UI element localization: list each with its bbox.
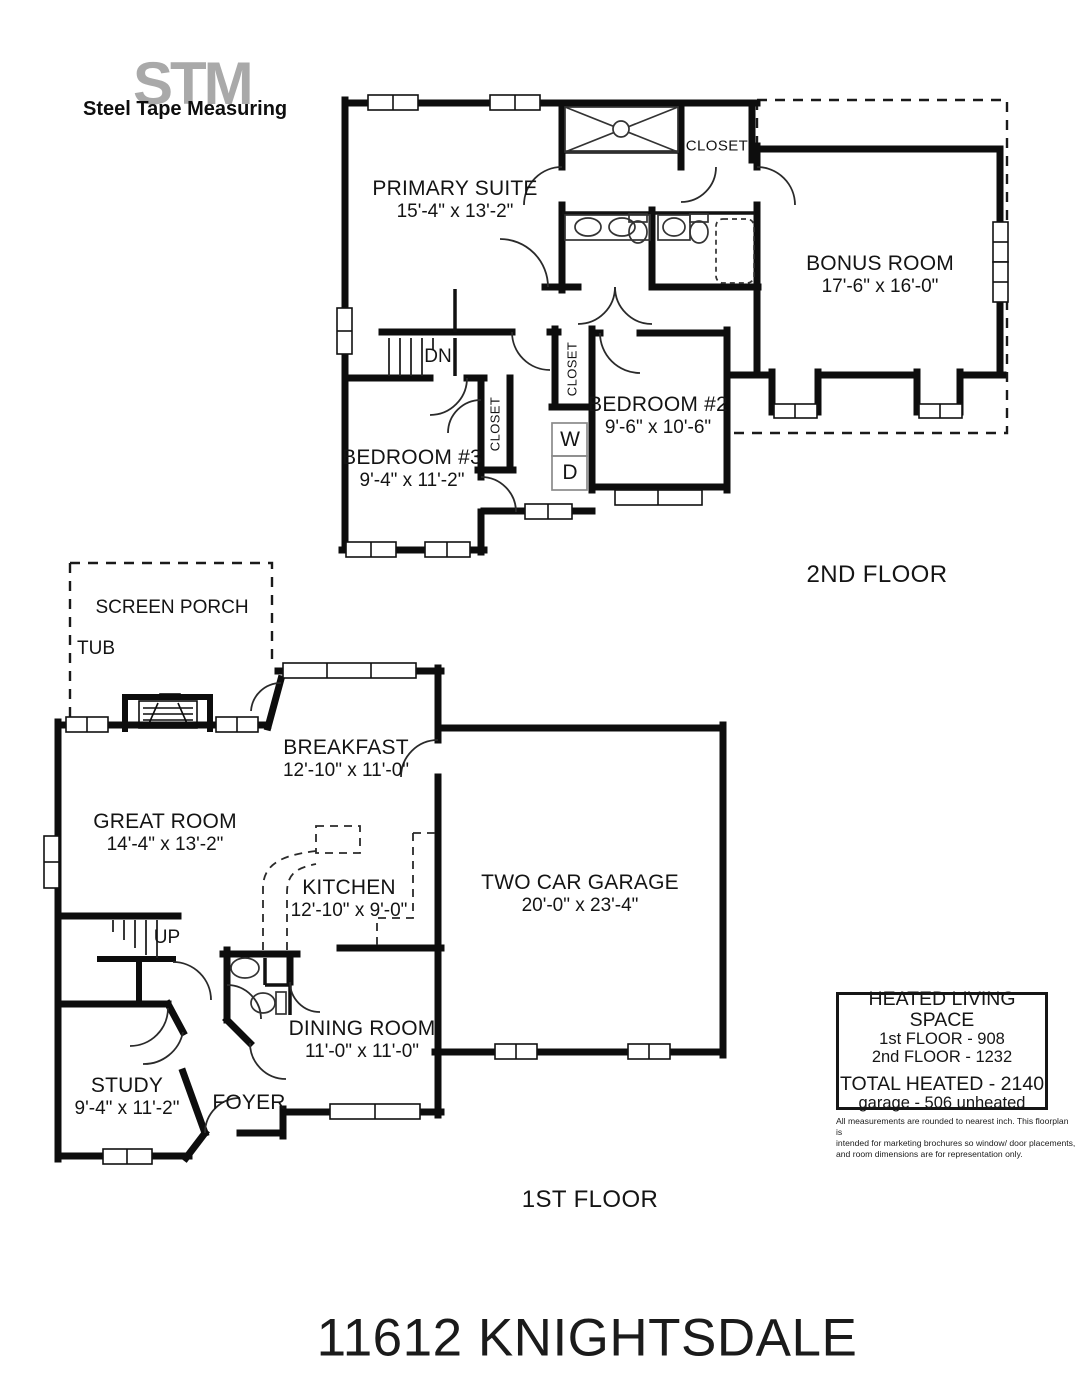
room-name: BONUS ROOM [806, 252, 954, 276]
summary-garage: garage - 506 unheated [859, 1095, 1026, 1113]
first-floor-label: 1ST FLOOR [522, 1186, 659, 1214]
summary-heading: HEATED LIVING SPACE [839, 989, 1045, 1031]
disclaimer-line2: intended for marketing brochures so wind… [836, 1138, 1076, 1149]
closet-label-bedroom2: CLOSET [564, 342, 579, 396]
room-name: DINING ROOM [289, 1017, 436, 1041]
stairs-down-label: DN [424, 346, 451, 368]
room-label-dining-room: DINING ROOM 11'-0" x 11'-0" [289, 1017, 436, 1063]
room-label-study: STUDY 9'-4" x 11'-2" [75, 1074, 180, 1120]
summary-first-floor: 1st FLOOR - 908 [879, 1031, 1005, 1049]
room-label-bedroom3: BEDROOM #3 9'-4" x 11'-2" [342, 446, 482, 492]
room-label-garage: TWO CAR GARAGE 20'-0" x 23'-4" [481, 871, 679, 917]
logo-text: Steel Tape Measuring [83, 98, 287, 121]
room-name: KITCHEN [291, 876, 408, 900]
closet-label-hall: CLOSET [487, 397, 502, 451]
washer-label: W [560, 428, 580, 452]
foyer-label: FOYER [212, 1091, 285, 1115]
logo: STM Steel Tape Measuring [83, 72, 313, 142]
room-dims: 17'-6" x 16'-0" [806, 276, 954, 298]
room-label-bonus-room: BONUS ROOM 17'-6" x 16'-0" [806, 252, 954, 298]
summary-second-floor: 2nd FLOOR - 1232 [872, 1049, 1012, 1067]
room-dims: 9'-4" x 11'-2" [342, 470, 482, 492]
room-name: PRIMARY SUITE [372, 177, 537, 201]
summary-total: TOTAL HEATED - 2140 [840, 1074, 1044, 1095]
room-label-primary-suite: PRIMARY SUITE 15'-4" x 13'-2" [372, 177, 537, 223]
room-label-bedroom2: BEDROOM #2 9'-6" x 10'-6" [588, 393, 728, 439]
screen-porch-label: SCREEN PORCH [95, 597, 248, 619]
room-name: TWO CAR GARAGE [481, 871, 679, 895]
floorplan-page: STM Steel Tape Measuring PRIMARY SUITE 1… [0, 0, 1080, 1397]
address-title: 11612 KNIGHTSDALE [317, 1307, 858, 1368]
stairs-up-label: UP [154, 927, 180, 949]
room-dims: 11'-0" x 11'-0" [289, 1041, 436, 1063]
room-dims: 9'-6" x 10'-6" [588, 417, 728, 439]
room-dims: 9'-4" x 11'-2" [75, 1098, 180, 1120]
dryer-label: D [562, 461, 577, 485]
room-label-breakfast: BREAKFAST 12'-10" x 11'-0" [283, 736, 409, 782]
room-label-great-room: GREAT ROOM 14'-4" x 13'-2" [93, 810, 237, 856]
first-floor-stairs [113, 920, 157, 958]
disclaimer: All measurements are rounded to nearest … [836, 1116, 1076, 1160]
closet-label-primary: CLOSET [686, 137, 748, 154]
room-name: GREAT ROOM [93, 810, 237, 834]
room-dims: 14'-4" x 13'-2" [93, 834, 237, 856]
room-name: BREAKFAST [283, 736, 409, 760]
room-dims: 15'-4" x 13'-2" [372, 201, 537, 223]
second-floor-label: 2ND FLOOR [807, 561, 948, 589]
second-floor-bath-fixtures [565, 107, 754, 283]
room-label-kitchen: KITCHEN 12'-10" x 9'-0" [291, 876, 408, 922]
tub-label: TUB [77, 638, 115, 660]
room-dims: 20'-0" x 23'-4" [481, 895, 679, 917]
disclaimer-line3: and room dimensions are for representati… [836, 1149, 1076, 1160]
disclaimer-line1: All measurements are rounded to nearest … [836, 1116, 1076, 1138]
room-name: STUDY [75, 1074, 180, 1098]
room-name: BEDROOM #2 [588, 393, 728, 417]
heated-living-space-box: HEATED LIVING SPACE 1st FLOOR - 908 2nd … [836, 992, 1048, 1110]
room-dims: 12'-10" x 11'-0" [283, 760, 409, 782]
room-dims: 12'-10" x 9'-0" [291, 900, 408, 922]
room-name: BEDROOM #3 [342, 446, 482, 470]
